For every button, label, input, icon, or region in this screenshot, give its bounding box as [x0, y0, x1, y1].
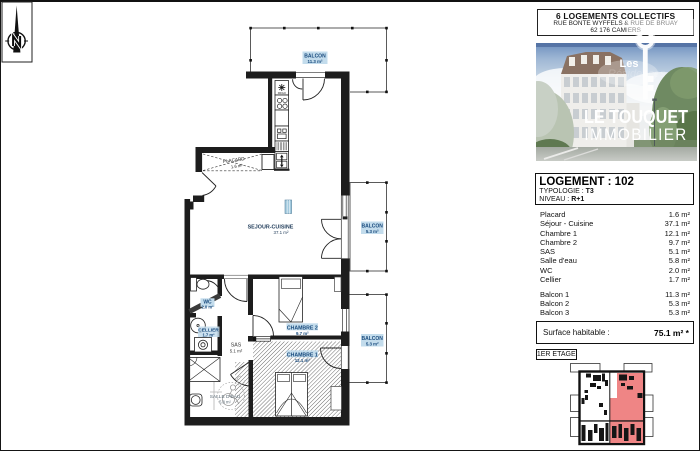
svg-text:11.3 m²: 11.3 m²: [308, 59, 323, 64]
svg-text:5.8 m²: 5.8 m²: [219, 400, 231, 405]
svg-text:5.3 m²: 5.3 m²: [366, 342, 379, 347]
svg-text:FRIGO: FRIGO: [278, 91, 286, 95]
svg-text:12.1 m²: 12.1 m²: [295, 358, 311, 363]
svg-text:1.6 m²: 1.6 m²: [231, 163, 244, 170]
svg-text:5.1 m²: 5.1 m²: [230, 349, 243, 354]
svg-text:37.1 m²: 37.1 m²: [274, 230, 289, 235]
svg-text:5.3 m²: 5.3 m²: [366, 229, 379, 234]
svg-text:2.0 m²: 2.0 m²: [201, 304, 214, 309]
svg-text:1.7 m²: 1.7 m²: [202, 333, 215, 338]
svg-text:9.7 m²: 9.7 m²: [296, 331, 309, 336]
